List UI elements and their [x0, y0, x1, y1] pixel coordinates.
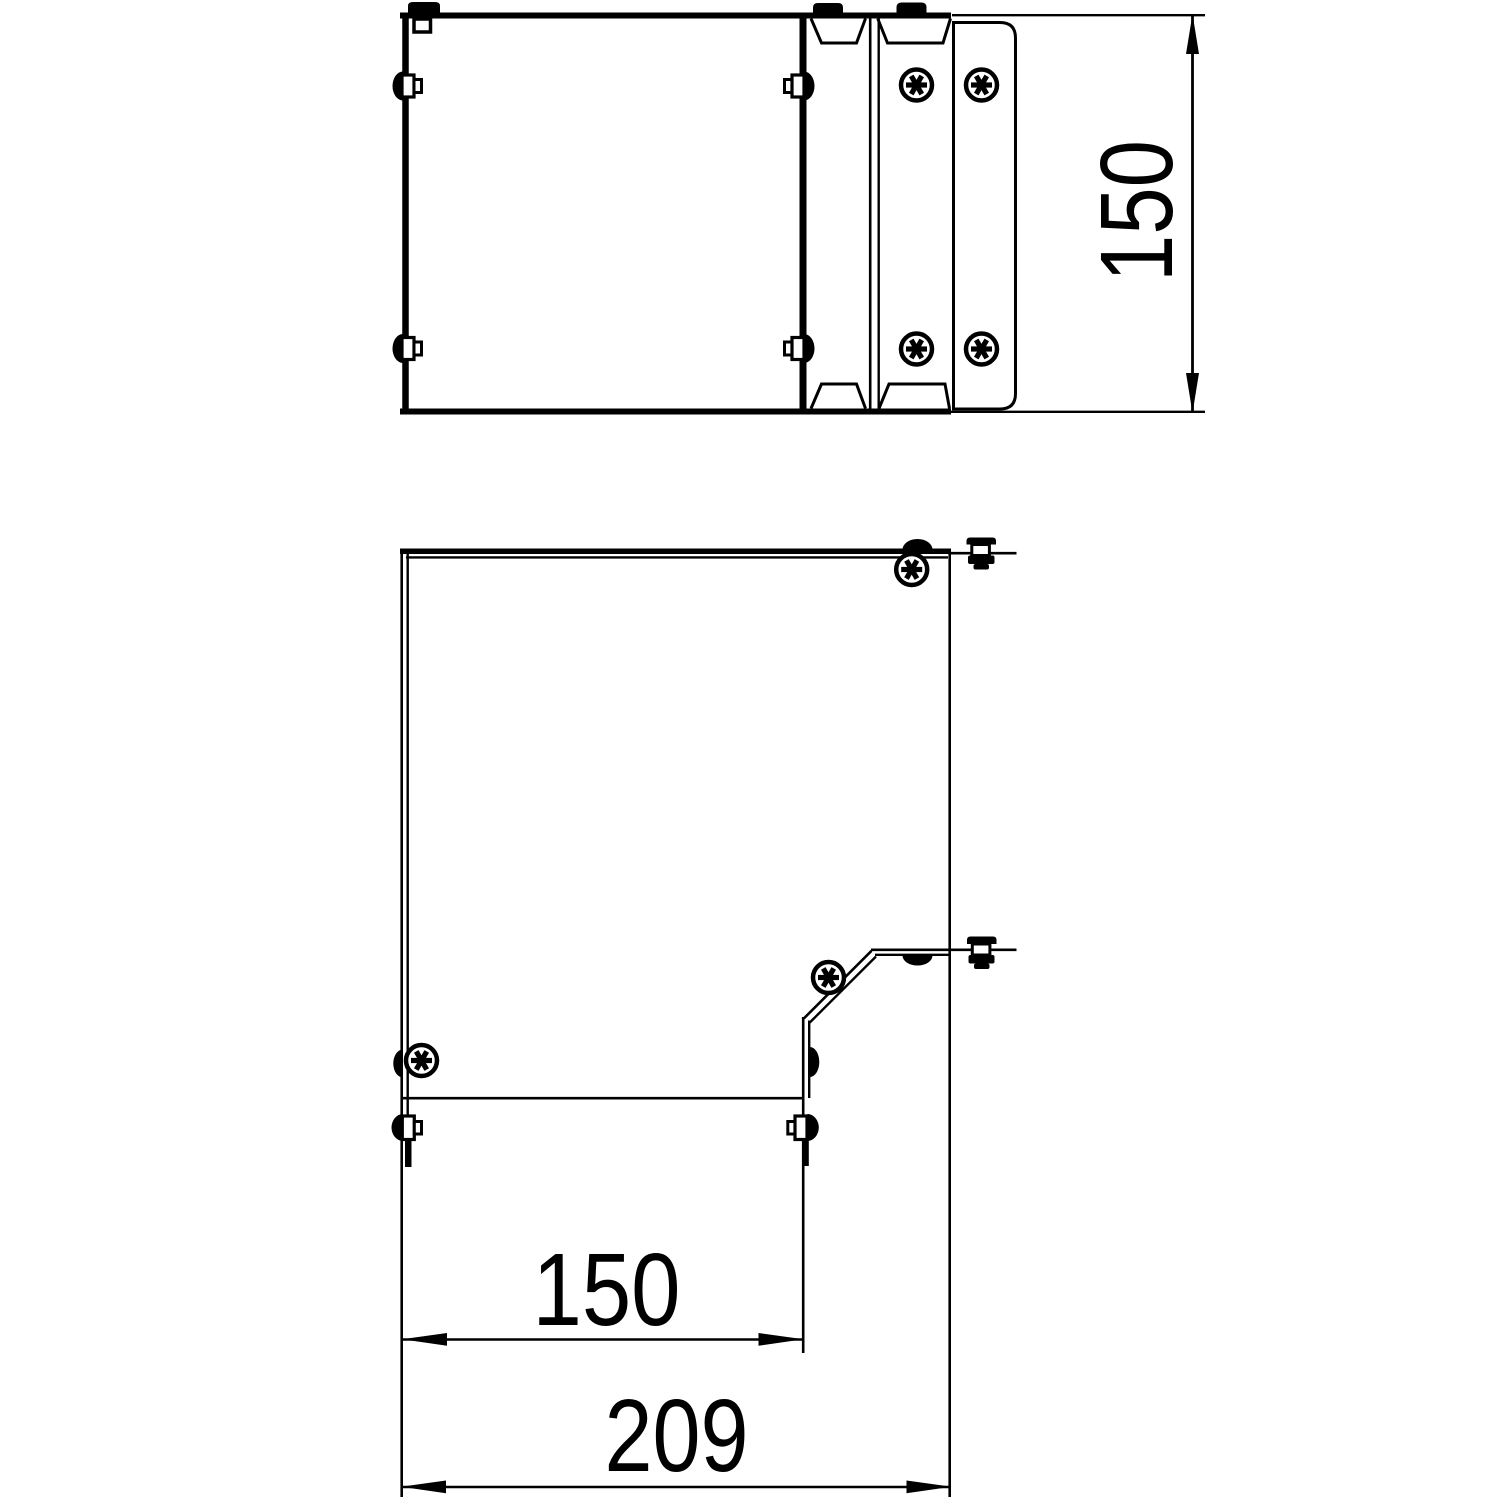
turnbuckle-sleeve [792, 338, 804, 360]
screw-cap-icon [408, 2, 440, 13]
turnbuckle-tab [414, 342, 422, 355]
notch-outline [879, 384, 950, 409]
turnbuckle-dome-icon [903, 956, 933, 966]
notch-outline [811, 384, 866, 409]
torx-screw-icon [901, 70, 932, 101]
height-dimension-label: 150 [1079, 140, 1194, 282]
turnbuckle-sleeve [402, 75, 414, 97]
turnbuckle-dome-icon [810, 1047, 820, 1077]
turnbuckle-tab [414, 1122, 421, 1135]
turnbuckle-dome-icon [903, 539, 933, 550]
turnbuckle-tab [414, 80, 422, 93]
turnbuckle-dome-icon [807, 1114, 819, 1141]
notch-outline [878, 19, 951, 44]
dimension-arrow-icon [401, 1481, 446, 1494]
dimension-arrow-icon [1186, 373, 1199, 413]
side-wall-stub [802, 1140, 809, 1166]
dimension-arrow-icon [402, 1333, 447, 1346]
overall-width-dimension-label: 209 [605, 1378, 749, 1493]
dimension-arrow-icon [1186, 14, 1199, 54]
turnbuckle-dome-icon [393, 1050, 403, 1078]
dimension-arrow-icon [907, 1481, 952, 1494]
plan-view: 150 209 [392, 538, 1017, 1498]
left-turnbuckle-clip [392, 1114, 422, 1141]
turnbuckle-sleeve [792, 75, 804, 97]
right-turnbuckle-clip [788, 1114, 819, 1141]
turnbuckle-sleeve [795, 1116, 807, 1140]
torx-screw-icon [901, 334, 932, 365]
dimension-arrow-icon [759, 1333, 804, 1346]
torx-screw-icon [966, 334, 997, 365]
overall-width-dimension: 209 [401, 1378, 952, 1493]
trunnion-bolt-icon [951, 538, 1017, 570]
turnbuckle-sleeve [402, 338, 414, 360]
notch-outline [811, 19, 866, 44]
torx-screw-icon [896, 554, 927, 585]
square-nut-icon [414, 19, 431, 32]
side-view: 150 [393, 2, 1206, 415]
trunnion-bolt-icon [967, 937, 997, 970]
turnbuckle-dome-icon [804, 72, 815, 101]
screw-cap-icon [897, 3, 927, 14]
torx-screw-icon [406, 1045, 437, 1076]
bolt-neck [972, 545, 990, 556]
inner-width-dimension-label: 150 [533, 1232, 681, 1347]
torx-screw-icon [813, 962, 844, 993]
drawing-canvas: 150 [0, 0, 1500, 1500]
bolt-foot [974, 564, 990, 570]
side-wall-stub [405, 1140, 412, 1167]
bolt-foot [974, 964, 990, 970]
technical-drawing: 150 [0, 0, 1500, 1500]
top-edge-screw-caps [408, 2, 927, 13]
inner-width-dimension: 150 [402, 1232, 804, 1347]
torx-screw-icon [966, 70, 997, 101]
bolt-flange [968, 556, 995, 565]
bolt-neck [972, 944, 990, 955]
turnbuckle-sleeve [402, 1116, 414, 1140]
screw-cap-icon [813, 3, 843, 13]
turnbuckle-dome-icon [804, 334, 815, 363]
bolt-flange [969, 955, 995, 964]
